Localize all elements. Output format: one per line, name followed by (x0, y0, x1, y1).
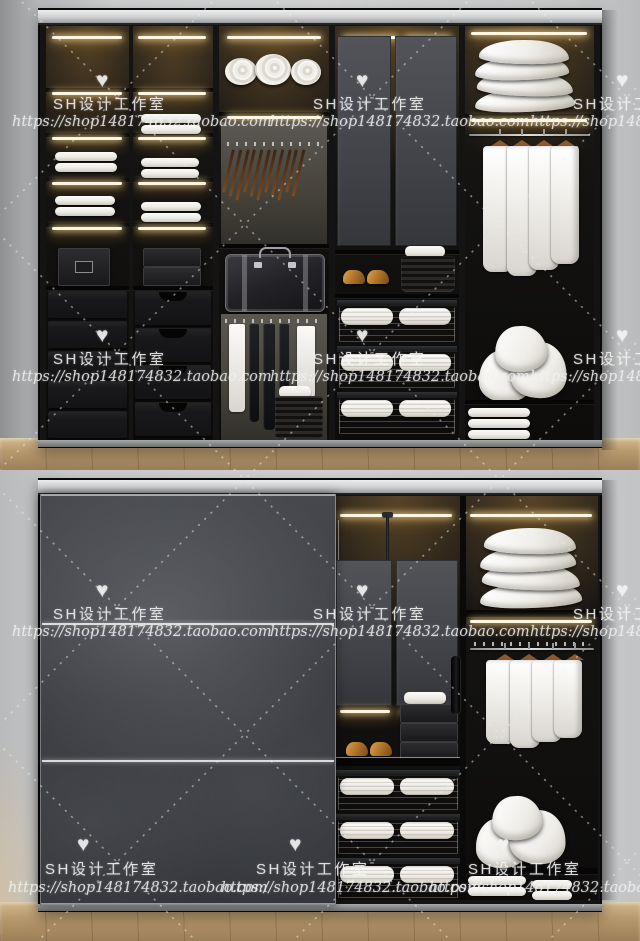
storage-box (400, 723, 458, 742)
section-right (465, 26, 594, 440)
sliding-door-closed (40, 494, 336, 906)
tan-shoe (370, 742, 392, 756)
folded-duvet-stack (468, 408, 530, 439)
basket-rail (337, 346, 457, 351)
wire-basket-row (336, 770, 460, 812)
wardrobe-shadow (602, 10, 618, 450)
led-strip (52, 36, 122, 39)
led-strip (470, 514, 592, 517)
hanging-rod (469, 134, 590, 136)
basket-rail (337, 300, 457, 305)
hanging-garment-dark (263, 324, 275, 430)
wardrobe-cabinet-open (38, 8, 602, 448)
gray-door-panel (337, 36, 391, 246)
shelf (133, 286, 213, 290)
drawer (48, 352, 127, 378)
hanger-hooks-row (474, 642, 590, 646)
led-strip (471, 32, 587, 35)
shelf (465, 400, 594, 404)
wire-basket-row (336, 814, 460, 856)
folded-towels (141, 158, 199, 178)
hanging-garment-dark (249, 324, 259, 422)
drawer-handle-cutout (159, 292, 187, 301)
basket-rail (336, 858, 460, 863)
door-edge-handle (451, 656, 460, 714)
wire-basket-row (337, 300, 457, 344)
wire-basket-row (337, 346, 457, 390)
folded-cloth (404, 692, 446, 704)
led-strip (138, 182, 206, 185)
drawer-handle-cutout (159, 403, 187, 412)
rolled-towel (225, 58, 257, 85)
drawer (135, 292, 211, 325)
door-top-edge (41, 494, 335, 496)
shelf (466, 610, 598, 617)
led-strip (138, 137, 206, 140)
white-shirt (554, 660, 582, 738)
hanging-garment-white (229, 324, 245, 412)
folded-towels (55, 152, 117, 172)
wire-basket-front (338, 865, 458, 898)
led-strip (52, 182, 122, 185)
drawer (48, 322, 127, 348)
hanger-hooks-row (227, 142, 319, 146)
folded-towels (141, 114, 201, 134)
tan-shoe (367, 270, 389, 284)
white-shirt (551, 146, 579, 264)
wicker-basket (275, 396, 323, 440)
rolled-towel (291, 59, 321, 85)
storage-box (400, 704, 458, 723)
drawer (135, 403, 211, 436)
panel-closed-wardrobe (0, 470, 640, 941)
wire-basket-row (336, 858, 460, 900)
led-strip (138, 36, 206, 39)
vintage-suitcase (225, 254, 325, 312)
shelf (335, 294, 459, 298)
panel-open-wardrobe (0, 0, 640, 470)
wire-basket-front (339, 307, 455, 342)
wire-basket-front (339, 353, 455, 388)
door-seam-line (42, 760, 334, 762)
basket-rail (336, 814, 460, 819)
led-strip (340, 710, 390, 713)
led-strip (52, 227, 122, 230)
tan-shoe (343, 270, 365, 284)
wire-basket-front (338, 821, 458, 854)
section-baskets (335, 26, 459, 440)
led-strip (138, 227, 206, 230)
wardrobe-base-rail (38, 440, 602, 447)
suitcase-latch (288, 262, 296, 268)
led-strip (227, 36, 321, 39)
shelf (465, 114, 594, 118)
storage-box (143, 248, 201, 267)
wire-basket-row (337, 392, 457, 436)
led-strip (138, 92, 206, 95)
gray-door-panel (395, 36, 457, 246)
section-middle (219, 26, 329, 440)
tan-shoe (346, 742, 368, 756)
door-seam-line (42, 623, 334, 625)
drawer (135, 366, 211, 399)
shelf (46, 286, 129, 290)
wardrobe-shadow (602, 480, 618, 900)
sliding-door-track (38, 10, 602, 25)
shelf (466, 868, 598, 874)
led-strip (52, 137, 122, 140)
drawer (48, 292, 127, 318)
led-strip (227, 116, 321, 119)
rolled-towel (255, 54, 291, 85)
gray-back-panel (336, 560, 392, 706)
folded-towel-stack (532, 880, 572, 900)
product-photo-wardrobe: ♥SH设计工作室https://shop148174832.taobao.com… (0, 0, 640, 941)
storage-box (58, 248, 110, 286)
led-strip (470, 620, 592, 623)
suitcase-band (242, 255, 247, 311)
storage-box (143, 267, 201, 286)
hook-rail (225, 319, 323, 323)
door-bottom-edge (41, 903, 335, 906)
slim-drawer-stack (48, 292, 127, 440)
deep-drawer-stack (135, 292, 211, 440)
led-strip (340, 514, 452, 517)
drawer-handle-cutout (159, 366, 187, 375)
suitcase-latch (254, 262, 262, 268)
open-section-middle (336, 496, 460, 900)
led-strip (52, 92, 122, 95)
folded-towels (141, 202, 201, 222)
suitcase-handle (259, 247, 291, 258)
wardrobe-cabinet-doors (38, 478, 602, 912)
wire-basket-front (339, 399, 455, 434)
folded-towels (55, 196, 115, 216)
gray-back-panel (396, 560, 458, 706)
sliding-door-track (38, 480, 602, 495)
wire-basket-front (338, 777, 458, 810)
open-section-right (466, 496, 598, 900)
hanger-row (227, 147, 305, 205)
drawer-handle-cutout (159, 329, 187, 338)
section-shelves-left2 (133, 26, 213, 440)
drawer (48, 412, 127, 438)
drawer (135, 329, 211, 362)
basket-rail (336, 770, 460, 775)
shelf (336, 758, 460, 766)
storage-crate (401, 256, 455, 292)
drawer (48, 382, 127, 408)
led-strip (471, 119, 587, 122)
suitcase-band (303, 255, 308, 311)
box-label (75, 261, 93, 273)
basket-rail (337, 392, 457, 397)
section-shelves-left (46, 26, 129, 440)
folded-towel-stack (468, 876, 526, 896)
